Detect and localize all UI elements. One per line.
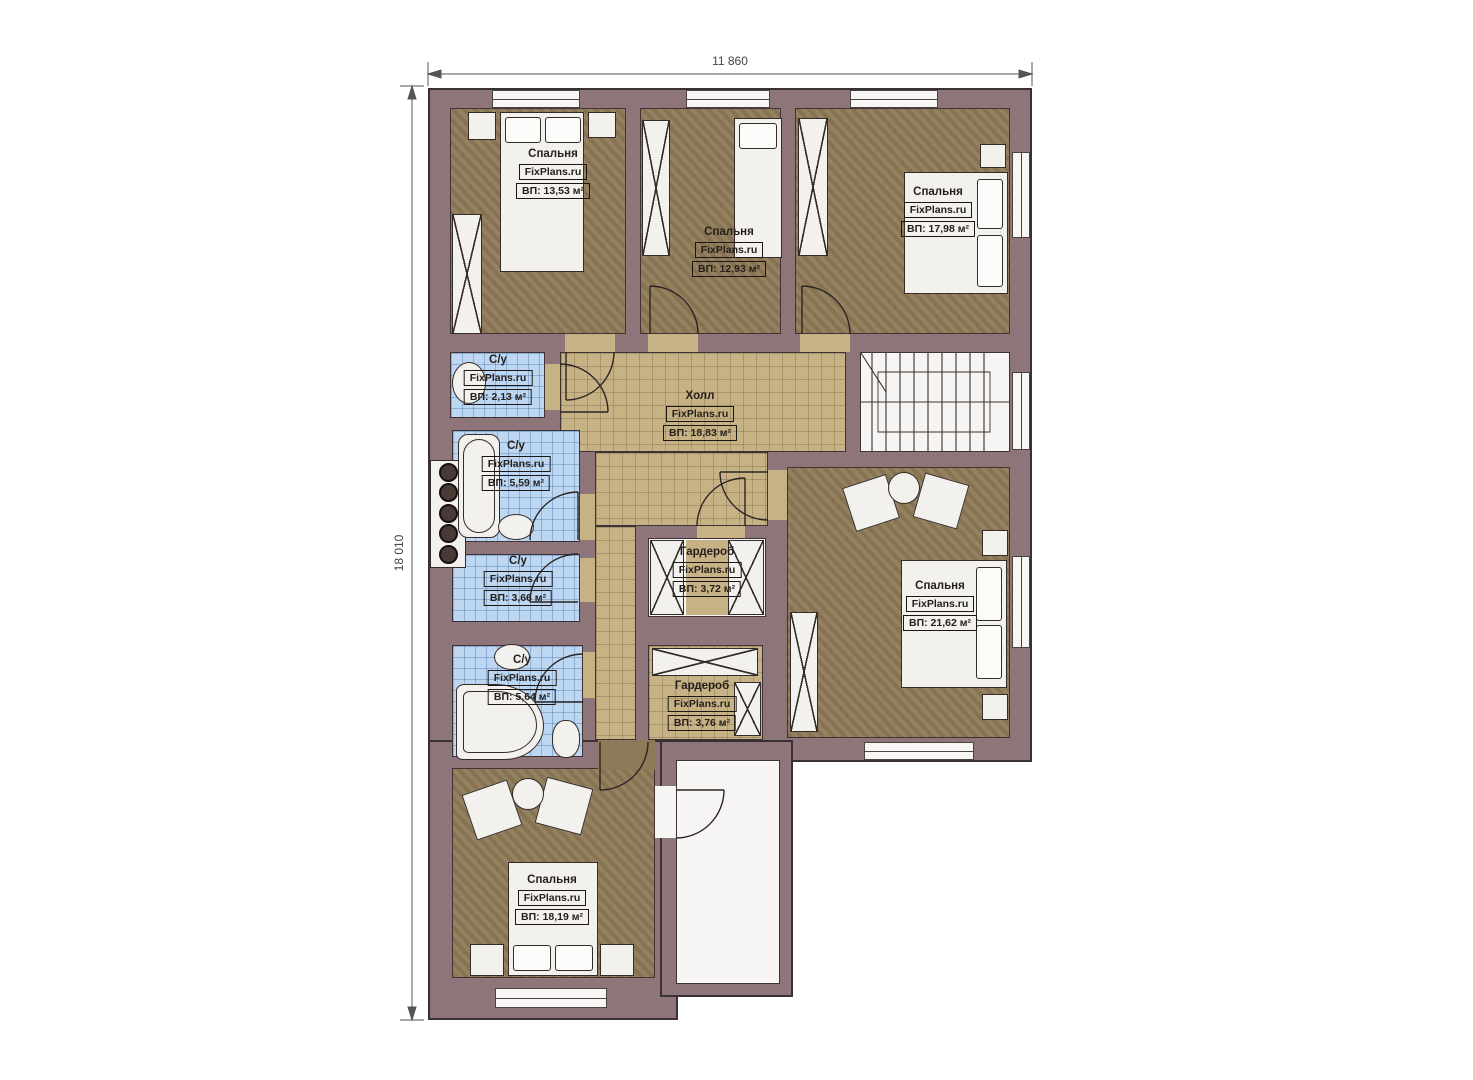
door-gap-bedroom-top-middle bbox=[648, 334, 698, 352]
window-top-middle bbox=[686, 90, 770, 108]
room-name: Спальня bbox=[913, 186, 963, 199]
pillow bbox=[976, 625, 1002, 679]
vent-circle bbox=[439, 545, 458, 564]
nightstand bbox=[982, 694, 1008, 720]
nightstand bbox=[470, 944, 504, 976]
room-area: ВП: 3,72 м² bbox=[673, 581, 741, 597]
room-brand: FixPlans.ru bbox=[464, 370, 533, 386]
wardrobe-unit bbox=[652, 648, 758, 676]
nightstand bbox=[588, 112, 616, 138]
room-label-bathroom-main: С/у FixPlans.ru ВП: 5,59 м² bbox=[482, 440, 551, 491]
toilet bbox=[552, 720, 580, 758]
room-label-bathroom-small: С/у FixPlans.ru ВП: 2,13 м² bbox=[464, 354, 533, 405]
pillow bbox=[505, 117, 541, 143]
window-top-left bbox=[492, 90, 580, 108]
door-gap-bedroom-right bbox=[768, 470, 787, 520]
window-top-right bbox=[850, 90, 938, 108]
room-brand: FixPlans.ru bbox=[906, 596, 975, 612]
nightstand bbox=[600, 944, 634, 976]
room-name: Спальня bbox=[528, 148, 578, 161]
door-gap-bathroom-small bbox=[545, 364, 560, 410]
door-gap-bathroom-lower bbox=[583, 652, 595, 698]
room-brand: FixPlans.ru bbox=[482, 456, 551, 472]
room-label-wardrobe-lower: Гардероб FixPlans.ru ВП: 3,76 м² bbox=[668, 680, 737, 731]
room-label-wardrobe-upper: Гардероб FixPlans.ru ВП: 3,72 м² bbox=[673, 546, 742, 597]
room-name: Холл bbox=[686, 390, 715, 403]
room-label-bathroom-middle: С/у FixPlans.ru ВП: 3,66 м² bbox=[484, 555, 553, 606]
pillow bbox=[739, 123, 777, 149]
room-area: ВП: 5,59 м² bbox=[482, 475, 550, 491]
pillow bbox=[545, 117, 581, 143]
room-label-bedroom-bottom: Спальня FixPlans.ru ВП: 18,19 м² bbox=[515, 874, 589, 925]
window-right-stairs bbox=[1012, 372, 1030, 450]
vent-circle bbox=[439, 524, 458, 543]
room-area: ВП: 18,19 м² bbox=[515, 909, 589, 925]
room-brand: FixPlans.ru bbox=[673, 562, 742, 578]
room-area: ВП: 21,62 м² bbox=[903, 615, 977, 631]
pillow bbox=[977, 179, 1003, 229]
room-brand: FixPlans.ru bbox=[695, 242, 764, 258]
room-label-bedroom-right: Спальня FixPlans.ru ВП: 21,62 м² bbox=[903, 580, 977, 631]
room-name: Спальня bbox=[915, 580, 965, 593]
coffee-table bbox=[512, 778, 544, 810]
window-right-bedroom-top bbox=[1012, 152, 1030, 238]
room-area: ВП: 17,98 м² bbox=[901, 221, 975, 237]
room-label-bedroom-top-left: Спальня FixPlans.ru ВП: 13,53 м² bbox=[516, 148, 590, 199]
pillow bbox=[513, 945, 551, 971]
sink bbox=[498, 514, 534, 540]
room-area: ВП: 2,13 м² bbox=[464, 389, 532, 405]
wardrobe-unit bbox=[642, 120, 670, 256]
room-label-hall: Холл FixPlans.ru ВП: 18,83 м² bbox=[663, 390, 737, 441]
room-brand: FixPlans.ru bbox=[666, 406, 735, 422]
floor-corridor-to-bedroom bbox=[598, 740, 655, 770]
room-area: ВП: 12,93 м² bbox=[692, 261, 766, 277]
window-wing-bottom bbox=[495, 988, 607, 1008]
coffee-table bbox=[888, 472, 920, 504]
dimension-width-label: 11 860 bbox=[712, 54, 748, 68]
floor-hall-mid bbox=[595, 452, 768, 526]
room-brand: FixPlans.ru bbox=[904, 202, 973, 218]
vent-circle bbox=[439, 504, 458, 523]
room-brand: FixPlans.ru bbox=[484, 571, 553, 587]
nightstand bbox=[980, 144, 1006, 168]
room-area: ВП: 3,76 м² bbox=[668, 715, 736, 731]
wardrobe-unit bbox=[734, 682, 761, 736]
room-area: ВП: 3,66 м² bbox=[484, 590, 552, 606]
room-name: Спальня bbox=[527, 874, 577, 887]
floor-stairwell bbox=[860, 352, 1010, 452]
room-label-bathroom-lower: С/у FixPlans.ru ВП: 5,64 м² bbox=[488, 654, 557, 705]
room-brand: FixPlans.ru bbox=[518, 890, 587, 906]
room-brand: FixPlans.ru bbox=[668, 696, 737, 712]
floor-plan-canvas: 11 860 18 010 Спальня FixPlans.ru ВП: 13… bbox=[0, 0, 1473, 1080]
room-name: С/у bbox=[507, 440, 525, 453]
room-label-bedroom-top-right: Спальня FixPlans.ru ВП: 17,98 м² bbox=[901, 186, 975, 237]
vent-circle bbox=[439, 483, 458, 502]
window-south-bedroom-right bbox=[864, 742, 974, 760]
room-brand: FixPlans.ru bbox=[519, 164, 588, 180]
pillow bbox=[977, 235, 1003, 287]
door-gap-bedroom-top-right bbox=[800, 334, 850, 352]
room-name: С/у bbox=[489, 354, 507, 367]
pillow bbox=[976, 567, 1002, 621]
vent-circle bbox=[439, 463, 458, 482]
wardrobe-unit bbox=[798, 118, 828, 256]
room-name: Гардероб bbox=[680, 546, 734, 559]
floor-hall-corridor bbox=[595, 526, 636, 740]
dimension-height-label: 18 010 bbox=[392, 535, 406, 572]
wardrobe-unit bbox=[790, 612, 818, 732]
room-label-bedroom-top-middle: Спальня FixPlans.ru ВП: 12,93 м² bbox=[692, 226, 766, 277]
window-right-bedroom bbox=[1012, 556, 1030, 648]
room-area: ВП: 18,83 м² bbox=[663, 425, 737, 441]
door-gap-wardrobe-upper bbox=[697, 526, 745, 538]
nightstand bbox=[468, 112, 496, 140]
room-name: Спальня bbox=[704, 226, 754, 239]
pillow bbox=[555, 945, 593, 971]
door-gap-bedroom-top-left bbox=[565, 334, 615, 352]
room-area: ВП: 5,64 м² bbox=[488, 689, 556, 705]
wardrobe-unit bbox=[452, 214, 482, 334]
room-brand: FixPlans.ru bbox=[488, 670, 557, 686]
room-name: Гардероб bbox=[675, 680, 729, 693]
room-name: С/у bbox=[513, 654, 531, 667]
room-name: С/у bbox=[509, 555, 527, 568]
floor-balcony bbox=[676, 760, 780, 984]
nightstand bbox=[982, 530, 1008, 556]
door-gap-bathroom-middle bbox=[580, 558, 595, 602]
room-area: ВП: 13,53 м² bbox=[516, 183, 590, 199]
door-gap-bathroom-main bbox=[580, 494, 595, 540]
door-gap-balcony bbox=[655, 786, 676, 838]
